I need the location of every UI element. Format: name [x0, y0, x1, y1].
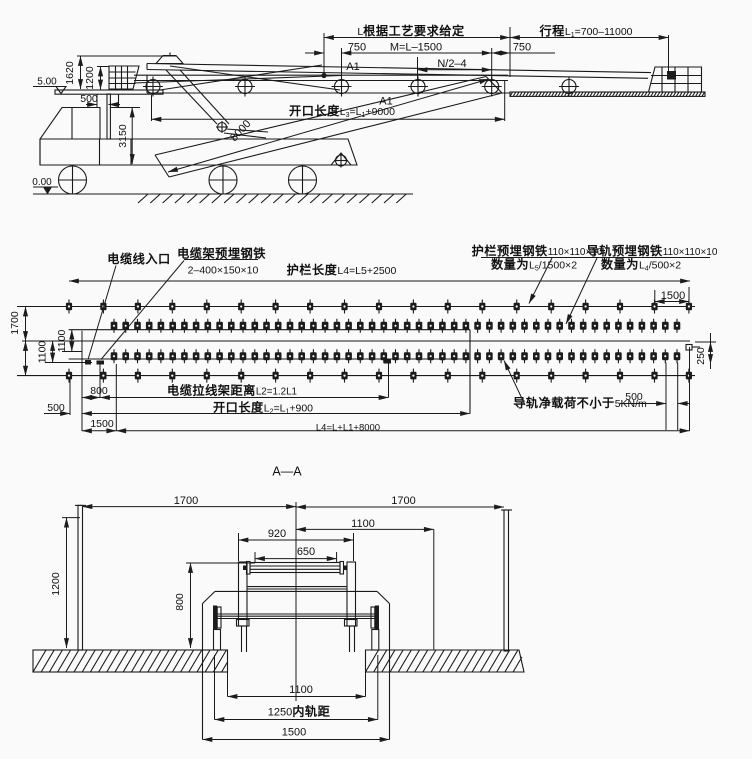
- svg-text:250: 250: [695, 347, 707, 365]
- svg-text:1700: 1700: [391, 495, 415, 507]
- svg-text:1100: 1100: [37, 341, 49, 364]
- svg-text:护栏长度L4=L5+2500: 护栏长度L4=L5+2500: [287, 262, 397, 277]
- svg-text:1500: 1500: [282, 727, 306, 739]
- svg-text:电缆架预埋钢铁: 电缆架预埋钢铁: [177, 245, 266, 260]
- svg-text:1250内轨距: 1250内轨距: [268, 704, 331, 719]
- svg-text:开口长度L3=L1+9000: 开口长度L3=L1+9000: [289, 103, 395, 119]
- svg-text:电缆线入口: 电缆线入口: [107, 251, 170, 266]
- svg-text:N/2–4: N/2–4: [437, 58, 466, 70]
- svg-text:L4=L+L1+8000: L4=L+L1+8000: [316, 423, 380, 434]
- svg-text:750: 750: [348, 42, 366, 54]
- svg-text:1700: 1700: [174, 495, 198, 507]
- svg-text:1100: 1100: [289, 684, 313, 696]
- svg-text:800: 800: [174, 593, 186, 611]
- svg-text:650: 650: [297, 546, 315, 558]
- svg-text:500: 500: [80, 93, 98, 105]
- svg-text:M=L–1500: M=L–1500: [390, 42, 442, 54]
- svg-text:1100: 1100: [351, 518, 375, 530]
- svg-text:数量为L4/500×2: 数量为L4/500×2: [600, 256, 681, 272]
- svg-text:5.00: 5.00: [37, 77, 57, 88]
- svg-text:2–400×150×10: 2–400×150×10: [188, 265, 259, 277]
- svg-text:500: 500: [625, 391, 643, 403]
- svg-text:A1: A1: [346, 61, 359, 73]
- svg-text:750: 750: [513, 42, 531, 54]
- svg-text:1200: 1200: [50, 572, 62, 596]
- svg-text:行程L1=700–11000: 行程L1=700–11000: [538, 23, 632, 39]
- svg-text:L根据工艺要求给定: L根据工艺要求给定: [357, 23, 465, 38]
- svg-text:3150: 3150: [117, 124, 129, 148]
- svg-text:1700: 1700: [9, 311, 21, 335]
- svg-text:0.00: 0.00: [32, 177, 52, 188]
- svg-text:500: 500: [47, 402, 65, 414]
- svg-text:1500: 1500: [90, 418, 114, 430]
- svg-text:数量为L5/1500×2: 数量为L5/1500×2: [490, 256, 577, 272]
- svg-text:A—A: A—A: [272, 465, 302, 479]
- svg-text:920: 920: [268, 528, 286, 540]
- svg-text:800: 800: [90, 385, 108, 397]
- svg-text:1200: 1200: [84, 66, 96, 90]
- svg-text:1100: 1100: [56, 330, 68, 353]
- svg-text:1620: 1620: [64, 61, 76, 85]
- svg-text:1500: 1500: [661, 290, 685, 302]
